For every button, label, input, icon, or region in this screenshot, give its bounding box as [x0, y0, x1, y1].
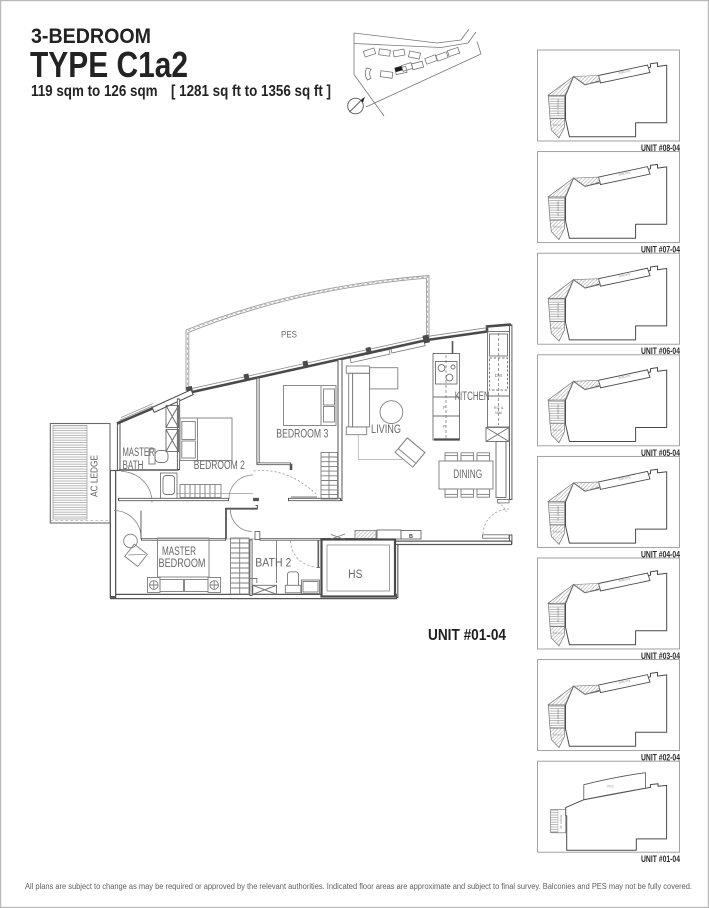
svg-text:MASTER: MASTER: [123, 447, 155, 459]
svg-text:MASTER: MASTER: [162, 546, 196, 558]
svg-text:UNIT #01-04: UNIT #01-04: [428, 627, 506, 644]
svg-text:119 sqm to 126 sqm [ 1281 sq: 119 sqm to 126 sqm [ 1281 sq ft to 1356 …: [31, 83, 331, 100]
svg-text:BEDROOM: BEDROOM: [159, 558, 206, 570]
svg-text:KITCHEN: KITCHEN: [455, 391, 490, 403]
svg-text:DINING: DINING: [453, 469, 482, 481]
svg-text:UNIT #01-04: UNIT #01-04: [641, 854, 681, 865]
svg-text:All plans are subject to chang: All plans are subject to change as may b…: [25, 882, 692, 891]
svg-text:AC LEDGE: AC LEDGE: [90, 455, 101, 497]
svg-text:HS: HS: [348, 569, 362, 581]
svg-text:WM: WM: [495, 410, 502, 415]
svg-text:F: F: [443, 405, 446, 410]
svg-text:F: F: [443, 424, 446, 429]
svg-text:BATH: BATH: [123, 460, 144, 472]
svg-text:TYPE C1a2: TYPE C1a2: [30, 44, 188, 85]
svg-text:LIVING: LIVING: [371, 424, 401, 436]
svg-text:PES: PES: [281, 330, 297, 340]
svg-text:BEDROOM 3: BEDROOM 3: [276, 428, 328, 440]
svg-text:B: B: [409, 534, 413, 540]
svg-text:DW: DW: [495, 373, 503, 378]
svg-text:BATH 2: BATH 2: [255, 558, 291, 570]
svg-text:BEDROOM 2: BEDROOM 2: [194, 460, 245, 472]
